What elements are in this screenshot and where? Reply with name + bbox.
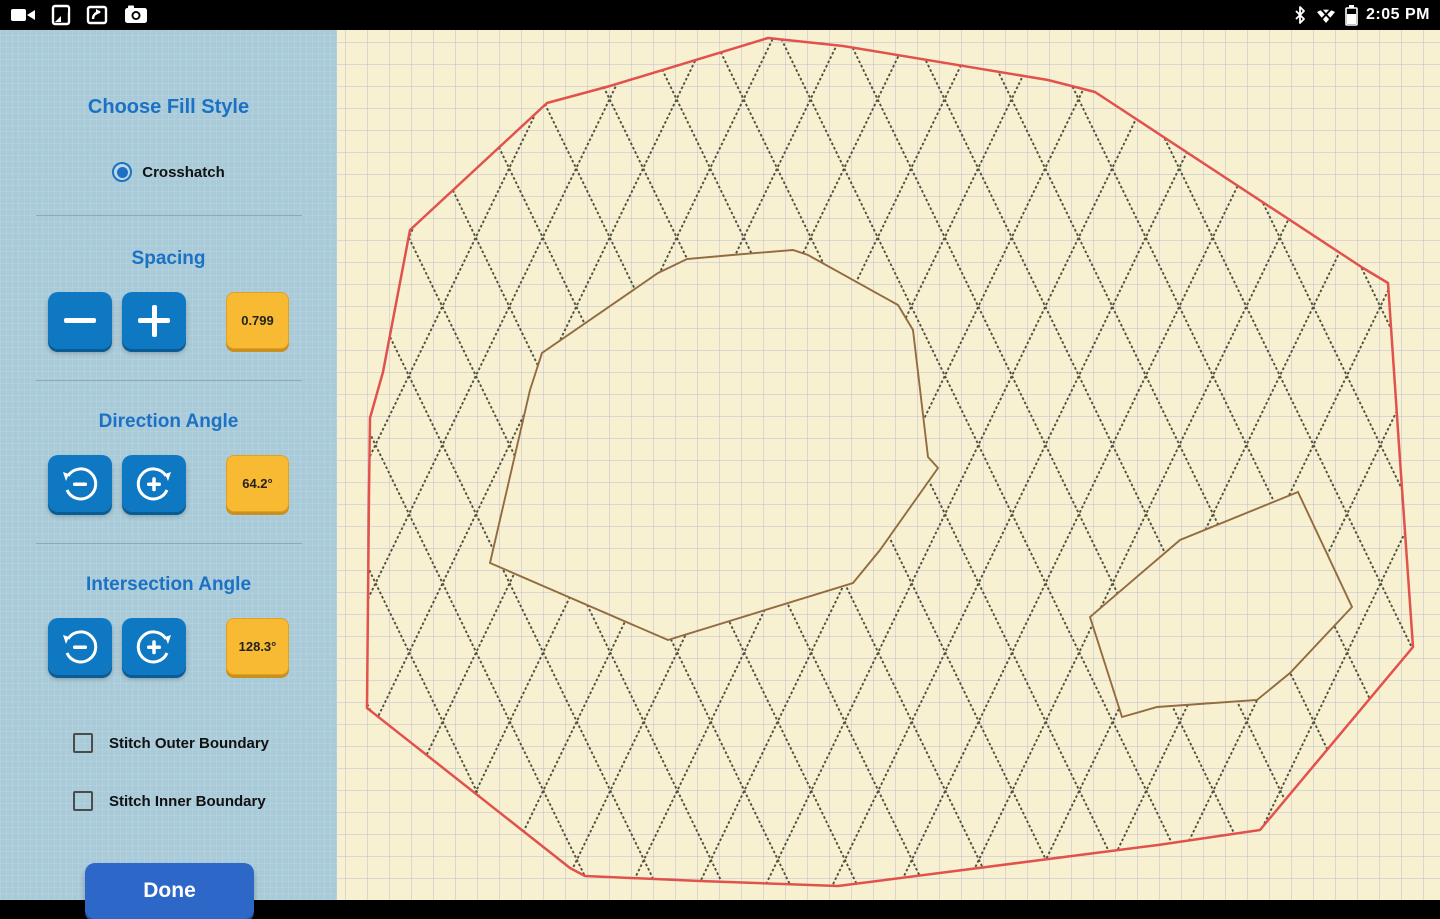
fill-style-option-crosshatch[interactable]: Crosshatch <box>0 162 337 182</box>
clock: 2:05 PM <box>1366 6 1430 24</box>
stitch-outer-boundary-option[interactable]: Stitch Outer Boundary <box>73 733 269 753</box>
status-bar-right: 2:05 PM <box>1293 5 1430 26</box>
minus-icon <box>64 318 96 323</box>
page-title: Choose Fill Style <box>0 96 337 119</box>
video-camera-icon <box>10 5 36 25</box>
spacing-value[interactable]: 0.799 <box>226 292 289 349</box>
status-bar-left-icons <box>10 4 148 26</box>
plus-icon <box>138 305 170 337</box>
divider <box>36 380 302 381</box>
rotate-cw-icon <box>133 626 175 668</box>
intersection-angle-label: Intersection Angle <box>0 574 337 596</box>
radio-label: Crosshatch <box>142 164 225 181</box>
direction-angle-label: Direction Angle <box>0 411 337 433</box>
checkbox-unchecked-icon[interactable] <box>73 733 93 753</box>
divider <box>36 215 302 216</box>
camera-icon <box>124 5 148 25</box>
checkbox-label: Stitch Inner Boundary <box>109 793 266 810</box>
intersection-rotate-ccw-button[interactable] <box>48 618 112 675</box>
spacing-label: Spacing <box>0 248 337 270</box>
checkbox-unchecked-icon[interactable] <box>73 791 93 811</box>
intersection-angle-value[interactable]: 128.3° <box>226 618 289 675</box>
bluetooth-icon <box>1293 5 1307 25</box>
rotate-ccw-icon <box>59 463 101 505</box>
direction-rotate-ccw-button[interactable] <box>48 455 112 512</box>
direction-angle-value[interactable]: 64.2° <box>226 455 289 512</box>
rotate-ccw-icon <box>59 626 101 668</box>
fill-style-panel: Choose Fill Style Crosshatch Spacing 0.7… <box>0 30 337 900</box>
crosshatch-preview[interactable] <box>337 30 1440 900</box>
screen-share-icon <box>86 4 110 26</box>
radio-selected-icon[interactable] <box>112 162 132 182</box>
battery-icon <box>1345 5 1358 26</box>
spacing-increase-button[interactable] <box>122 292 186 349</box>
status-bar: 2:05 PM <box>0 0 1440 30</box>
direction-rotate-cw-button[interactable] <box>122 455 186 512</box>
wifi-off-icon <box>1315 5 1337 25</box>
done-button[interactable]: Done <box>85 863 254 919</box>
rotate-cw-icon <box>133 463 175 505</box>
stitch-inner-boundary-option[interactable]: Stitch Inner Boundary <box>73 791 266 811</box>
spacing-decrease-button[interactable] <box>48 292 112 349</box>
design-canvas[interactable] <box>337 30 1440 900</box>
intersection-rotate-cw-button[interactable] <box>122 618 186 675</box>
divider <box>36 543 302 544</box>
checkbox-label: Stitch Outer Boundary <box>109 735 269 752</box>
screenshot-icon <box>50 4 72 26</box>
